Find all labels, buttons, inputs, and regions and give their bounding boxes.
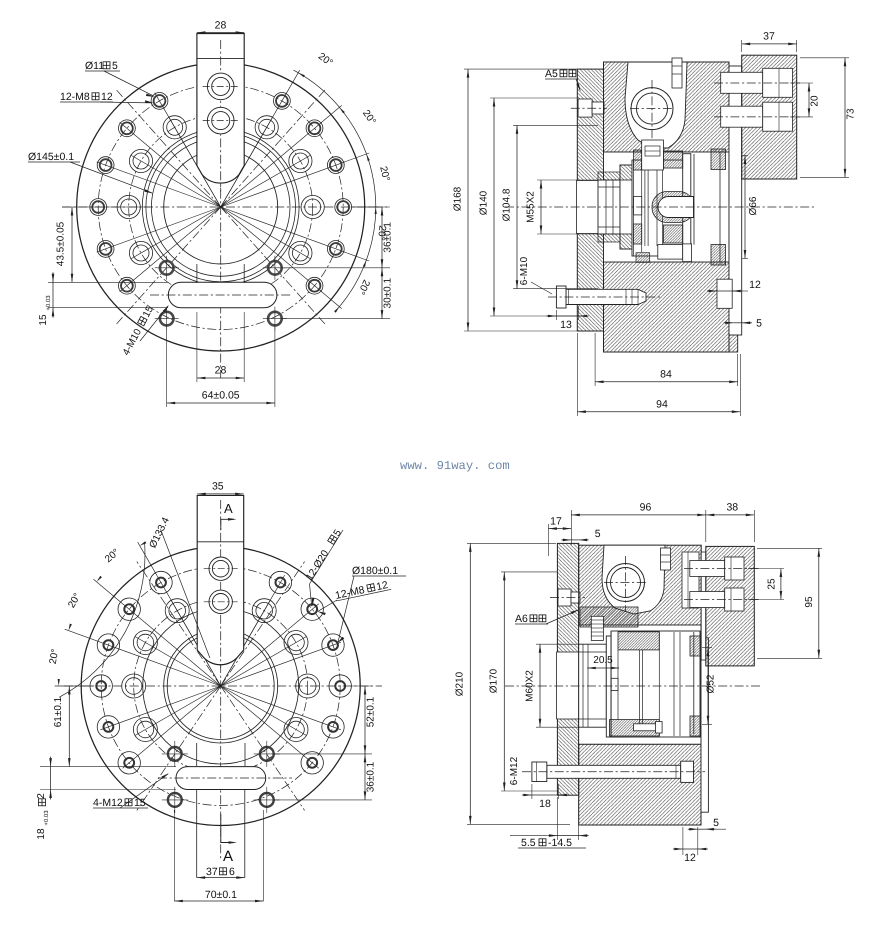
svg-text:+0.03: +0.03 <box>43 810 50 826</box>
svg-text:6-M10: 6-M10 <box>519 256 530 285</box>
svg-text:64±0.05: 64±0.05 <box>202 390 240 402</box>
svg-text:61±0.1: 61±0.1 <box>53 696 64 727</box>
svg-text:95: 95 <box>804 596 815 608</box>
svg-text:A5: A5 <box>545 68 558 80</box>
svg-text:12: 12 <box>101 91 113 103</box>
svg-text:5: 5 <box>756 318 762 330</box>
svg-text:4-M12: 4-M12 <box>93 797 123 809</box>
svg-text:94: 94 <box>656 399 668 411</box>
svg-text:84: 84 <box>660 369 672 381</box>
svg-text:20: 20 <box>810 95 821 107</box>
svg-text:28: 28 <box>215 20 227 32</box>
svg-text:A6: A6 <box>515 613 528 625</box>
svg-text:-14.5: -14.5 <box>548 837 572 849</box>
svg-text:28: 28 <box>215 365 227 377</box>
svg-text:5: 5 <box>112 60 118 72</box>
svg-text:5: 5 <box>595 528 601 540</box>
svg-text:5.5: 5.5 <box>521 837 536 849</box>
svg-text:96: 96 <box>640 502 652 514</box>
svg-text:36±0.1: 36±0.1 <box>366 761 377 792</box>
svg-text:15: 15 <box>38 314 49 326</box>
svg-text:2: 2 <box>36 793 47 799</box>
svg-text:18: 18 <box>36 828 47 840</box>
svg-text:12: 12 <box>684 852 696 864</box>
svg-text:Ø180±0.1: Ø180±0.1 <box>352 565 398 577</box>
svg-text:30±0.1: 30±0.1 <box>383 278 394 309</box>
svg-text:25: 25 <box>767 578 778 590</box>
svg-text:Ø140: Ø140 <box>479 190 490 215</box>
svg-text:12: 12 <box>749 279 761 291</box>
svg-text:37: 37 <box>206 866 218 878</box>
svg-text:37: 37 <box>763 31 775 43</box>
svg-text:Ø11: Ø11 <box>85 60 104 72</box>
svg-text:Ø66: Ø66 <box>748 196 759 215</box>
svg-text:M55X2: M55X2 <box>526 191 537 223</box>
svg-text:15: 15 <box>134 797 146 809</box>
svg-text:17: 17 <box>550 516 562 528</box>
svg-text:43.5±0.05: 43.5±0.05 <box>56 221 67 266</box>
svg-text:Ø145±0.1: Ø145±0.1 <box>28 151 74 163</box>
svg-text:M60X2: M60X2 <box>525 670 536 702</box>
svg-text:Ø104.8: Ø104.8 <box>502 188 513 221</box>
svg-text:Ø168: Ø168 <box>453 186 464 211</box>
svg-text:70±0.1: 70±0.1 <box>205 889 237 901</box>
svg-text:18: 18 <box>539 798 551 810</box>
svg-text:52±0.1: 52±0.1 <box>366 696 377 727</box>
svg-text:Ø210: Ø210 <box>455 671 466 696</box>
svg-text:38: 38 <box>726 502 738 514</box>
svg-text:A: A <box>224 501 233 516</box>
svg-text:Ø170: Ø170 <box>489 668 500 693</box>
svg-text:6: 6 <box>229 866 235 878</box>
svg-text:Ø52: Ø52 <box>706 674 717 693</box>
svg-text:20.5: 20.5 <box>593 655 613 666</box>
svg-text:6-M12: 6-M12 <box>509 756 520 785</box>
svg-text:www. 91way. com: www. 91way. com <box>400 459 510 473</box>
svg-text:13: 13 <box>560 319 572 331</box>
svg-text:5: 5 <box>713 817 719 829</box>
svg-text:73: 73 <box>846 108 857 120</box>
svg-text:35: 35 <box>212 481 224 493</box>
svg-text:+0.03: +0.03 <box>45 295 52 311</box>
svg-text:36±0.1: 36±0.1 <box>383 222 394 253</box>
svg-text:A: A <box>223 848 233 865</box>
svg-text:12-M8: 12-M8 <box>60 91 90 103</box>
